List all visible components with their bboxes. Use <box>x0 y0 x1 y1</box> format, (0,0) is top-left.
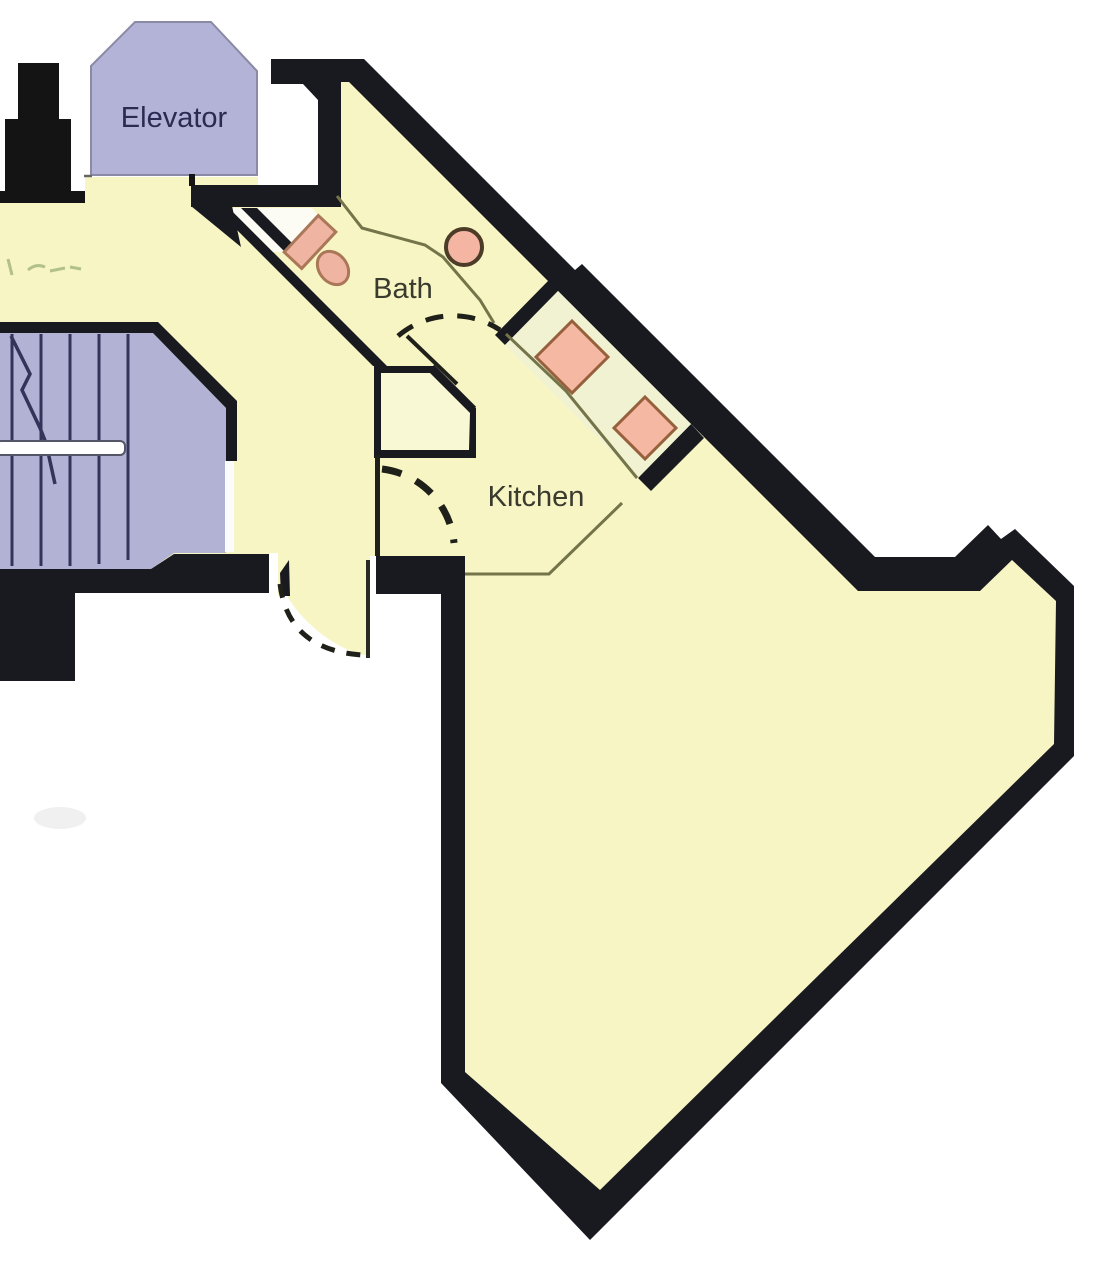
svg-text:Bath: Bath <box>373 273 433 305</box>
svg-text:Kitchen: Kitchen <box>488 481 585 513</box>
svg-text:Elevator: Elevator <box>121 102 228 134</box>
